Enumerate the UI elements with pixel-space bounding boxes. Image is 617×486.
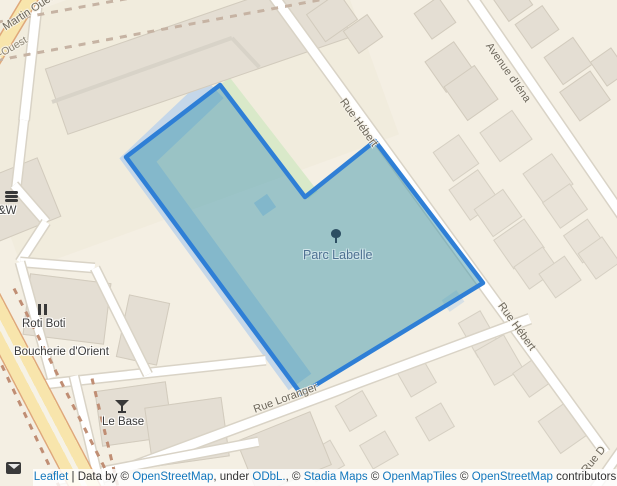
poi-label-le-base: Le Base (102, 416, 144, 428)
attribution-link-odbl[interactable]: ODbL. (252, 471, 285, 483)
attribution-link-stadia-maps[interactable]: Stadia Maps (304, 471, 368, 483)
attribution-bar: Leaflet | Data by © OpenStreetMap, under… (33, 469, 617, 486)
burger-icon (5, 191, 18, 194)
attribution-text: contributors (553, 471, 616, 483)
envelope-icon (6, 462, 21, 474)
building (415, 402, 455, 441)
park-label: Parc Labelle (303, 248, 373, 262)
restaurant-icon (38, 304, 41, 315)
attribution-link-leaflet[interactable]: Leaflet (34, 471, 69, 483)
tree-icon (330, 229, 342, 244)
attribution-text: | Data by © (68, 471, 132, 483)
map-canvas[interactable]: Martin Ouest n-Ouest Rue Hébert Rue Hébe… (0, 0, 617, 486)
poi-label-aw: &W (0, 205, 17, 217)
attribution-link-openmaptiles[interactable]: OpenMapTiles (383, 471, 457, 483)
bar-icon (115, 400, 129, 413)
attribution-text: © (457, 471, 472, 483)
attribution-link-openstreetmap-2[interactable]: OpenStreetMap (472, 471, 553, 483)
attribution-text: , under (213, 471, 252, 483)
poi-label-boucherie: Boucherie d'Orient (14, 346, 109, 358)
poi-label-roti-boti: Roti Boti (22, 318, 65, 330)
road-local (20, 258, 95, 272)
building (335, 390, 378, 432)
building (479, 110, 532, 162)
building (359, 430, 399, 469)
building (414, 0, 457, 40)
attribution-link-openstreetmap[interactable]: OpenStreetMap (132, 471, 213, 483)
attribution-text: © (368, 471, 383, 483)
attribution-text: , © (286, 471, 304, 483)
